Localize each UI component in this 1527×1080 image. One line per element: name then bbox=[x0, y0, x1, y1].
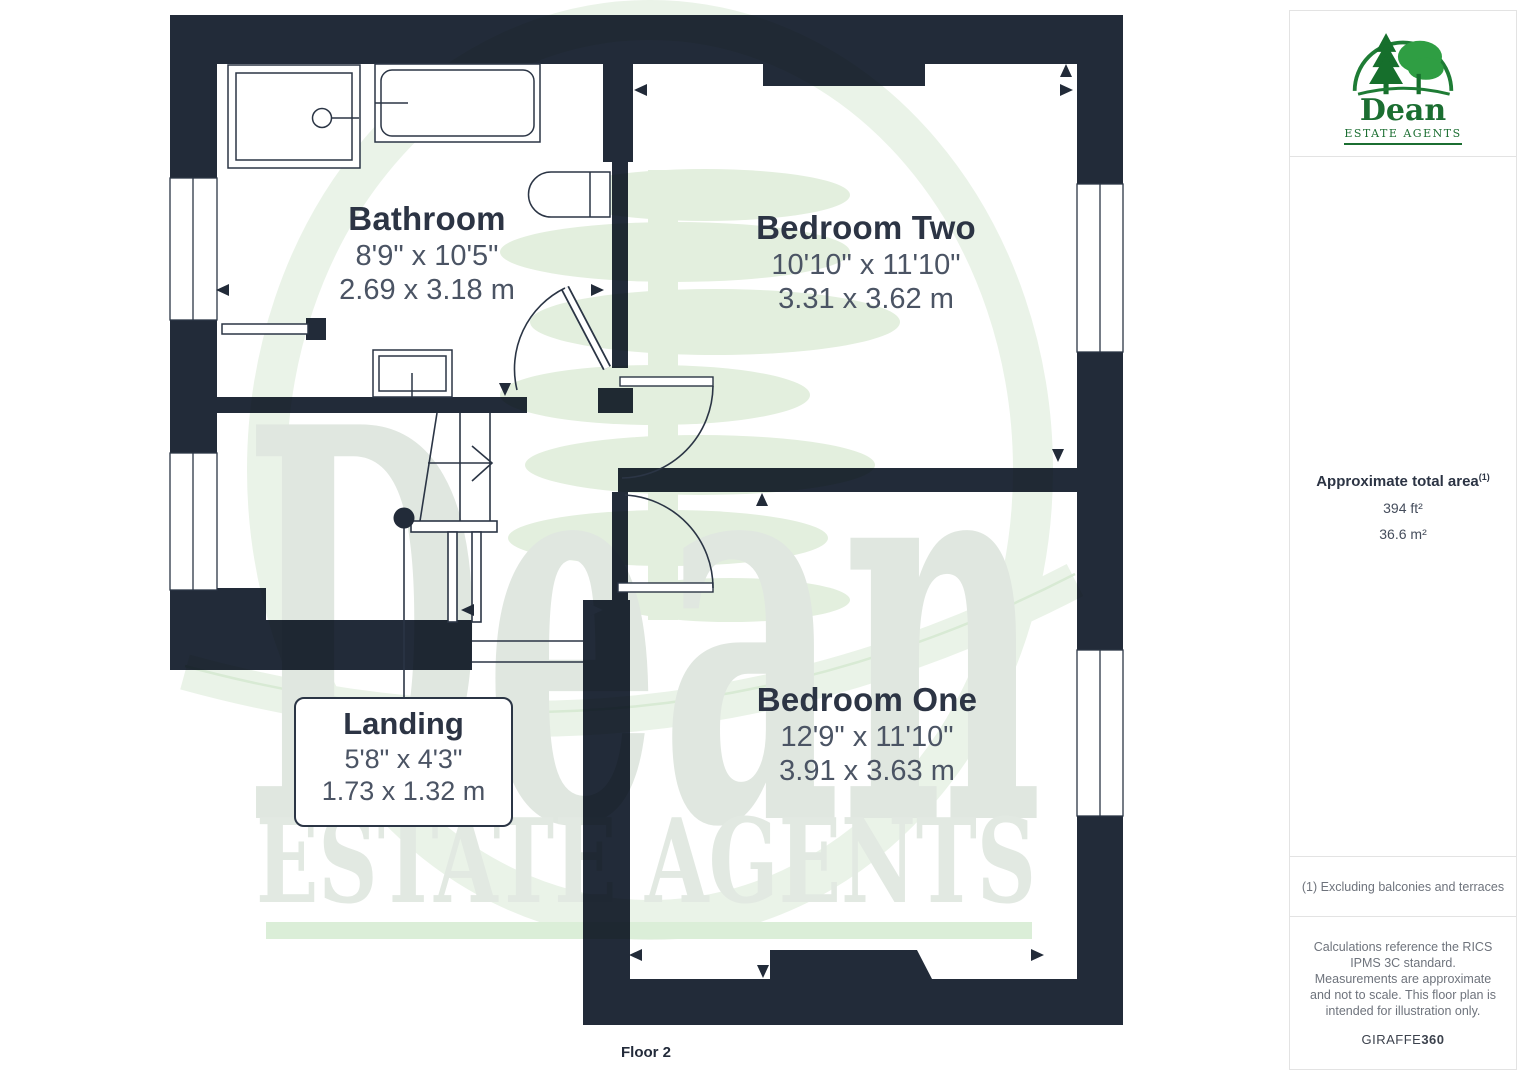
wall-bottom bbox=[583, 979, 1123, 1025]
arrow-down-bedroom-one bbox=[757, 965, 769, 978]
arrow-right-bathroom bbox=[591, 284, 604, 296]
cupboard-door bbox=[222, 324, 308, 334]
landing-leader-dot bbox=[394, 508, 415, 529]
total-area-metric: 36.6 m² bbox=[1379, 526, 1426, 542]
agency-logo-icon bbox=[1337, 23, 1469, 101]
shower bbox=[228, 65, 360, 168]
brand-suffix: 360 bbox=[1421, 1032, 1444, 1047]
landing-callout: Landing 5'8" x 4'3" 1.73 x 1.32 m bbox=[294, 697, 513, 827]
floor-label: Floor 2 bbox=[586, 1044, 706, 1061]
disclaimer-section: Calculations reference the RICS IPMS 3C … bbox=[1290, 917, 1516, 1069]
room-dim-metric: 1.73 x 1.32 m bbox=[296, 775, 511, 807]
total-area-section: Approximate total area(1) 394 ft² 36.6 m… bbox=[1290, 157, 1516, 857]
floor-plan-drawing: Dean ESTATE AGENTS bbox=[0, 0, 1287, 1080]
wall-right-top bbox=[1077, 15, 1123, 184]
total-area-footnote-ref: (1) bbox=[1479, 472, 1490, 482]
wall-right-mid bbox=[1077, 352, 1123, 650]
brand-logo: GIRAFFE360 bbox=[1361, 1032, 1444, 1047]
room-dim-imperial: 5'8" x 4'3" bbox=[296, 743, 511, 775]
total-area-title-text: Approximate total area bbox=[1316, 473, 1479, 490]
arrow-left-bedroom-two bbox=[634, 84, 647, 96]
bathtub bbox=[375, 64, 540, 142]
arrow-left-bedroom-one bbox=[629, 949, 642, 961]
total-area-imperial: 394 ft² bbox=[1383, 500, 1423, 516]
arrow-down-bedroom-two bbox=[1052, 449, 1064, 462]
footnote-text: (1) Excluding balconies and terraces bbox=[1302, 880, 1504, 894]
toilet bbox=[529, 172, 611, 217]
agency-name: Dean bbox=[1360, 97, 1446, 125]
footnote-section: (1) Excluding balconies and terraces bbox=[1290, 857, 1516, 917]
sink bbox=[373, 350, 452, 397]
brand-name: GIRAFFE bbox=[1361, 1032, 1421, 1047]
arrow-up-bedroom-two bbox=[1060, 64, 1072, 77]
wall-left-mid bbox=[170, 320, 217, 453]
wall-chimney-bottom bbox=[770, 950, 932, 979]
wall-left-upper bbox=[170, 15, 217, 178]
floorplan-page: { "plan": { "floor_label": "Floor 2", "r… bbox=[0, 0, 1527, 1080]
disclaimer-text: Calculations reference the RICS IPMS 3C … bbox=[1310, 939, 1496, 1019]
arrow-right-bedroom-one bbox=[1031, 949, 1044, 961]
broadleaf-tree-icon bbox=[1398, 40, 1444, 93]
floor-plan: Dean ESTATE AGENTS bbox=[0, 0, 1287, 1080]
arrow-right-bedroom-two bbox=[1060, 84, 1073, 96]
arrow-left-bathroom bbox=[216, 284, 229, 296]
watermark-underline bbox=[266, 922, 1032, 939]
room-name: Landing bbox=[296, 705, 511, 743]
agency-tagline: ESTATE AGENTS bbox=[1344, 127, 1461, 145]
total-area-title: Approximate total area(1) bbox=[1316, 472, 1490, 490]
info-sidebar: Dean ESTATE AGENTS Approximate total are… bbox=[1289, 10, 1517, 1070]
agency-logo: Dean ESTATE AGENTS bbox=[1290, 11, 1516, 157]
